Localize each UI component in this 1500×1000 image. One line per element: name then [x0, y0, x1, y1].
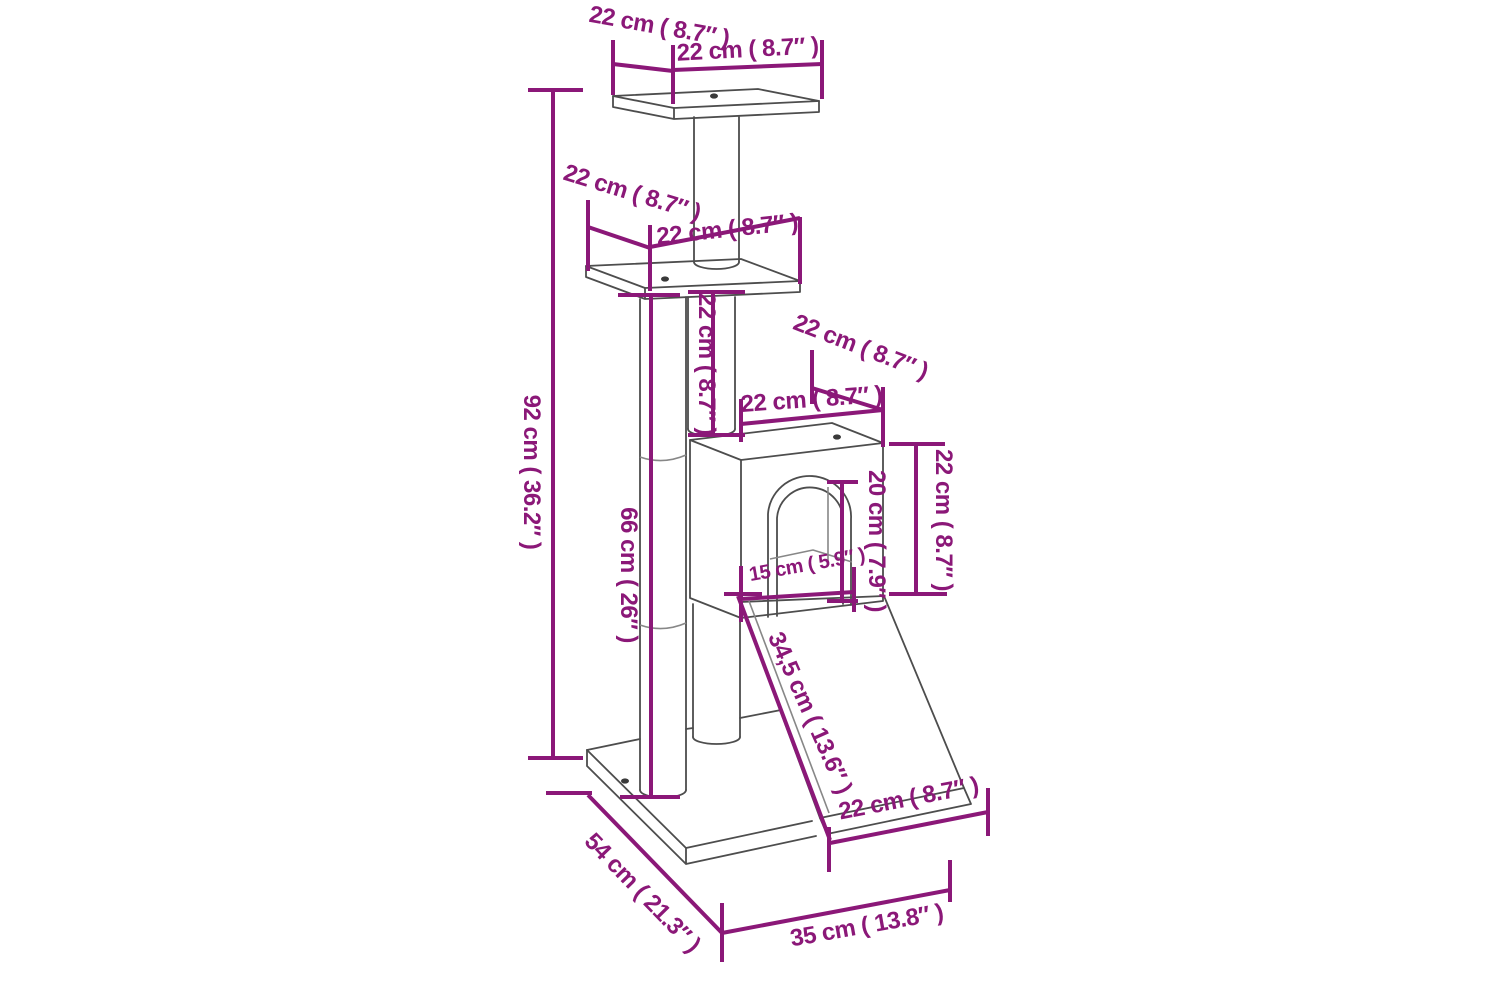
dim-label-mid-platform-depth: 22 cm ( 8.7″ ) [560, 159, 704, 226]
dim-column-segment: 22 cm ( 8.7″ ) [688, 292, 745, 435]
screw-dot [661, 276, 669, 281]
screw-dot [833, 434, 841, 439]
cat-tree-diagram-canvas: 22 cm ( 8.7″ ) 22 cm ( 8.7″ ) 22 cm ( 8.… [0, 0, 1500, 1000]
dim-label-door-height: 20 cm ( 7.9″ ) [863, 470, 890, 612]
dim-house-roof: 22 cm ( 8.7″ ) 22 cm ( 8.7″ ) [740, 309, 932, 447]
screw-dot [621, 778, 629, 783]
dim-door-height: 20 cm ( 7.9″ ) [827, 470, 890, 612]
base-board [587, 710, 816, 864]
dim-mid-platform: 22 cm ( 8.7″ ) 22 cm ( 8.7″ ) [560, 159, 800, 291]
dimension-annotations: 22 cm ( 8.7″ ) 22 cm ( 8.7″ ) 22 cm ( 8.… [518, 1, 988, 962]
upper-post [694, 117, 739, 269]
dim-label-door-shelf: 15 cm ( 5.9″ ) [747, 544, 866, 586]
screw-dot [710, 93, 718, 98]
dim-total-height: 92 cm ( 36.2″ ) [518, 90, 583, 758]
dim-label-ramp-length: 34,5 cm ( 13.6″ ) [762, 628, 857, 798]
dim-base-depth: 54 cm ( 21.3″ ) [546, 793, 722, 958]
dim-label-column-segment: 22 cm ( 8.7″ ) [693, 293, 720, 435]
dim-label-post-height: 66 cm ( 26″ ) [615, 507, 642, 643]
top-platform [613, 89, 819, 119]
dim-post-height: 66 cm ( 26″ ) [615, 295, 680, 797]
dim-house-height: 22 cm ( 8.7″ ) [889, 444, 957, 594]
dimension-diagram: 22 cm ( 8.7″ ) 22 cm ( 8.7″ ) 22 cm ( 8.… [0, 0, 1500, 1000]
dim-label-house-height: 22 cm ( 8.7″ ) [930, 449, 957, 591]
left-post [640, 297, 686, 798]
dim-label-total-height: 92 cm ( 36.2″ ) [518, 395, 545, 550]
dim-top-platform: 22 cm ( 8.7″ ) 22 cm ( 8.7″ ) [587, 1, 822, 104]
lower-post [693, 604, 740, 744]
dim-base-width: 35 cm ( 13.8″ ) [722, 860, 950, 962]
